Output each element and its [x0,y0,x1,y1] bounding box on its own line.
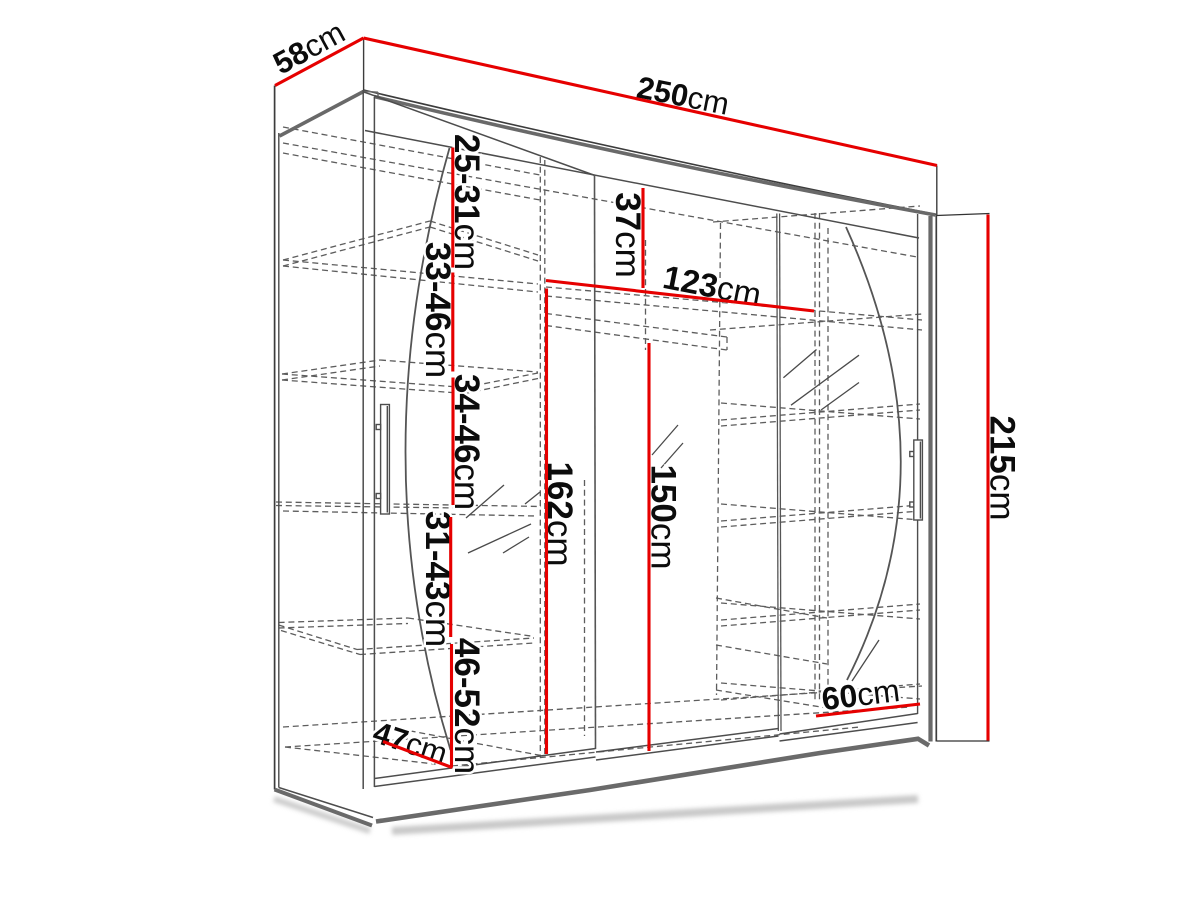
svg-text:37cm: 37cm [608,192,647,278]
svg-text:33-46cm: 33-46cm [418,242,457,378]
